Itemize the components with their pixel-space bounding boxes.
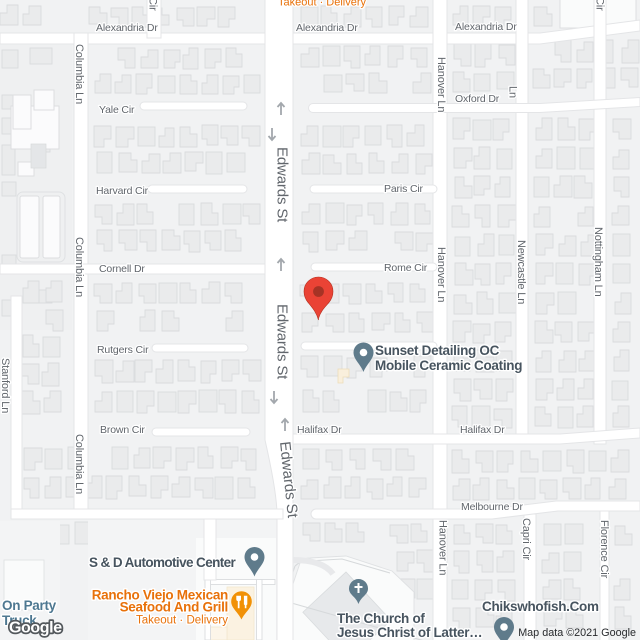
svg-text:Cir: Cir xyxy=(147,0,159,11)
svg-text:On Party: On Party xyxy=(2,598,57,613)
svg-text:Google: Google xyxy=(9,620,62,637)
svg-text:Sunset Detailing OC: Sunset Detailing OC xyxy=(375,343,500,358)
svg-text:Columbia Ln: Columbia Ln xyxy=(73,44,85,104)
svg-text:Columbia Ln: Columbia Ln xyxy=(73,434,85,494)
svg-text:Nottingham Ln: Nottingham Ln xyxy=(592,227,604,297)
svg-text:Halifax Dr: Halifax Dr xyxy=(297,424,342,436)
svg-text:Edwards St: Edwards St xyxy=(274,147,291,223)
svg-text:Edwards St: Edwards St xyxy=(274,304,291,380)
svg-text:Cir: Cir xyxy=(594,0,606,11)
svg-text:Takeout · Delivery: Takeout · Delivery xyxy=(278,0,367,9)
svg-text:Mobile Ceramic Coating: Mobile Ceramic Coating xyxy=(375,358,522,373)
svg-text:Hanover Ln: Hanover Ln xyxy=(435,57,447,112)
svg-text:Florence Cir: Florence Cir xyxy=(598,520,610,579)
svg-text:Alexandria Dr: Alexandria Dr xyxy=(296,22,358,34)
svg-text:Harvard Cir: Harvard Cir xyxy=(96,185,149,197)
svg-text:Newcastle Ln: Newcastle Ln xyxy=(515,240,527,304)
svg-text:Rome Cir: Rome Cir xyxy=(384,262,428,274)
svg-text:Oxford Dr: Oxford Dr xyxy=(455,93,500,105)
svg-text:Capri Cir: Capri Cir xyxy=(520,518,532,561)
svg-text:The Church of: The Church of xyxy=(337,611,425,626)
svg-text:Ln: Ln xyxy=(507,86,519,98)
svg-text:Takeout · Delivery: Takeout · Delivery xyxy=(136,615,228,627)
svg-text:Cornell Dr: Cornell Dr xyxy=(99,263,145,275)
svg-text:Stanford Ln: Stanford Ln xyxy=(0,358,11,413)
svg-text:Jesus Christ of Latter…: Jesus Christ of Latter… xyxy=(337,625,482,640)
svg-text:Paris Cir: Paris Cir xyxy=(384,183,424,195)
svg-text:Columbia Ln: Columbia Ln xyxy=(73,237,85,297)
svg-text:Seafood And Grill: Seafood And Grill xyxy=(120,600,228,615)
svg-text:Map data ©2021 Google: Map data ©2021 Google xyxy=(518,627,636,639)
svg-text:Hanover Ln: Hanover Ln xyxy=(437,520,449,575)
svg-text:Brown Cir: Brown Cir xyxy=(100,424,145,436)
svg-text:Alexandria Dr: Alexandria Dr xyxy=(96,22,158,34)
svg-text:Yale Cir: Yale Cir xyxy=(99,104,135,116)
svg-text:Rutgers Cir: Rutgers Cir xyxy=(97,344,149,356)
svg-text:Hanover Ln: Hanover Ln xyxy=(435,247,447,302)
svg-text:Halifax Dr: Halifax Dr xyxy=(460,424,505,436)
svg-text:Chikswhofish.Com: Chikswhofish.Com xyxy=(482,599,599,614)
svg-text:Alexandria Dr: Alexandria Dr xyxy=(455,21,517,33)
svg-text:S & D Automotive Center: S & D Automotive Center xyxy=(89,555,237,570)
svg-text:Melbourne Dr: Melbourne Dr xyxy=(461,501,523,513)
